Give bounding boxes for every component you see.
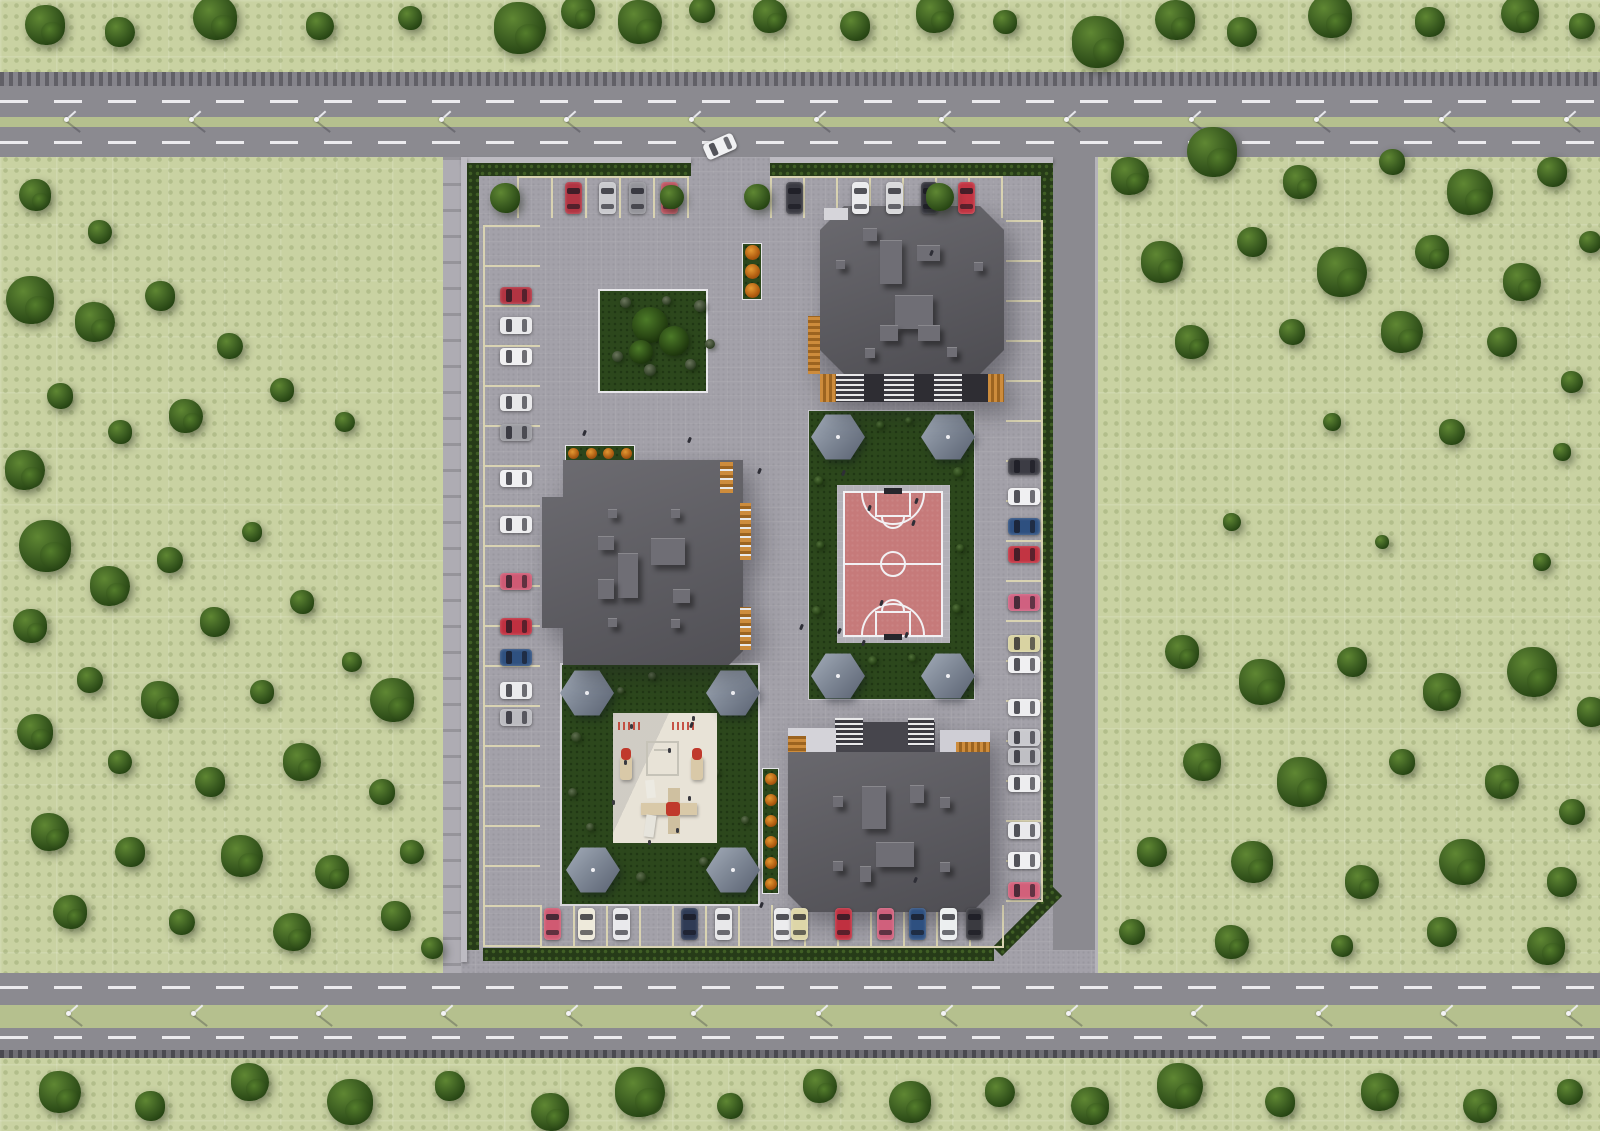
tree-lobe: [183, 413, 202, 431]
tree-lobe: [1398, 329, 1421, 351]
tree: [840, 11, 870, 41]
tree: [115, 837, 145, 867]
tree: [398, 6, 422, 30]
tree: [108, 420, 132, 444]
tree-lobe: [931, 11, 952, 31]
tree-lobe: [1457, 859, 1482, 883]
tree: [381, 901, 411, 931]
tree: [660, 185, 684, 209]
tree: [1223, 513, 1241, 531]
tree: [400, 840, 424, 864]
tree: [108, 750, 132, 774]
tree: [169, 909, 195, 935]
tree-lobe: [211, 15, 235, 38]
tree-lobe: [1297, 778, 1325, 804]
tree: [1137, 837, 1167, 867]
tree: [250, 680, 274, 704]
tree: [1227, 17, 1257, 47]
site-plan-scene: Aerial 3D site plan render of a resident…: [0, 0, 1600, 1131]
tree-lobe: [91, 319, 113, 340]
tree: [744, 184, 770, 210]
tree-lobe: [1229, 939, 1248, 957]
tree: [1553, 443, 1571, 461]
tree: [1579, 231, 1600, 253]
tree-lobe: [767, 13, 786, 31]
tree: [217, 333, 243, 359]
tree-lobe: [25, 296, 51, 321]
tree-lobe: [1297, 179, 1316, 197]
tree: [1119, 919, 1145, 945]
tree: [1557, 1079, 1583, 1105]
tree-lobe: [21, 467, 43, 488]
tree: [1237, 227, 1267, 257]
tree-lobe: [1126, 173, 1147, 193]
tree: [290, 590, 314, 614]
tree-lobe: [345, 1099, 370, 1123]
tree: [1559, 799, 1585, 825]
tree: [342, 652, 362, 672]
tree: [77, 667, 103, 693]
tree: [490, 183, 520, 213]
tree: [306, 12, 334, 40]
tree: [105, 17, 135, 47]
tree: [1439, 419, 1465, 445]
tree: [1547, 867, 1577, 897]
tree: [1389, 749, 1415, 775]
tree: [335, 412, 355, 432]
tree: [369, 779, 395, 805]
tree-lobe: [515, 24, 544, 51]
tree-lobe: [1337, 268, 1365, 294]
tree: [1427, 917, 1457, 947]
tree: [1279, 319, 1305, 345]
tree-lobe: [1189, 339, 1208, 357]
tree-lobe: [298, 759, 319, 779]
tree: [993, 10, 1017, 34]
tree-lobe: [1257, 679, 1282, 703]
tree-lobe: [156, 697, 177, 717]
tree: [1265, 1087, 1295, 1117]
tree-lobe: [636, 19, 660, 42]
tree-lobe: [1499, 779, 1518, 797]
tree-lobe: [388, 697, 412, 720]
tree: [1323, 413, 1341, 431]
tree: [1379, 149, 1405, 175]
tree-lobe: [1158, 259, 1181, 281]
tree: [1537, 157, 1567, 187]
tree: [157, 547, 183, 573]
tree: [1331, 935, 1353, 957]
tree: [1415, 7, 1445, 37]
tree: [1337, 647, 1367, 677]
tree-lobe: [1527, 668, 1555, 694]
tree: [717, 1093, 743, 1119]
tree-lobe: [1175, 1083, 1200, 1107]
tree-lobe: [246, 1079, 267, 1099]
tree: [689, 0, 715, 23]
tree: [1487, 327, 1517, 357]
tree: [435, 1071, 465, 1101]
tree-lobe: [106, 583, 128, 604]
tree: [47, 383, 73, 409]
tree: [88, 220, 112, 244]
tree: [200, 607, 230, 637]
tree: [145, 281, 175, 311]
tree: [1569, 13, 1595, 39]
tree: [1577, 697, 1600, 727]
tree-lobe: [1465, 189, 1490, 213]
tree-lobe: [1438, 689, 1459, 709]
tree-lobe: [46, 829, 67, 849]
tree: [135, 1091, 165, 1121]
tree-lobe: [817, 1083, 836, 1101]
tree-lobe: [1326, 13, 1350, 36]
tree: [1375, 535, 1389, 549]
tree: [926, 183, 954, 211]
tree-lobe: [1376, 1089, 1397, 1109]
tree: [242, 522, 262, 542]
tree: [270, 378, 294, 402]
tree-lobe: [1248, 859, 1271, 881]
tree-lobe: [906, 1099, 929, 1121]
tree-lobe: [1207, 148, 1235, 174]
tree: [195, 767, 225, 797]
tree-lobe: [238, 853, 261, 875]
tree: [1561, 371, 1583, 393]
tree-lobe: [56, 1089, 79, 1111]
tree: [421, 937, 443, 959]
tree-lobe: [1359, 879, 1378, 897]
tree-lobe: [1093, 38, 1122, 65]
tree: [1533, 553, 1551, 571]
tree-lobe: [1518, 279, 1539, 299]
tree-lobe: [635, 1088, 663, 1114]
tree: [985, 1077, 1015, 1107]
vegetation: [0, 0, 1600, 1131]
